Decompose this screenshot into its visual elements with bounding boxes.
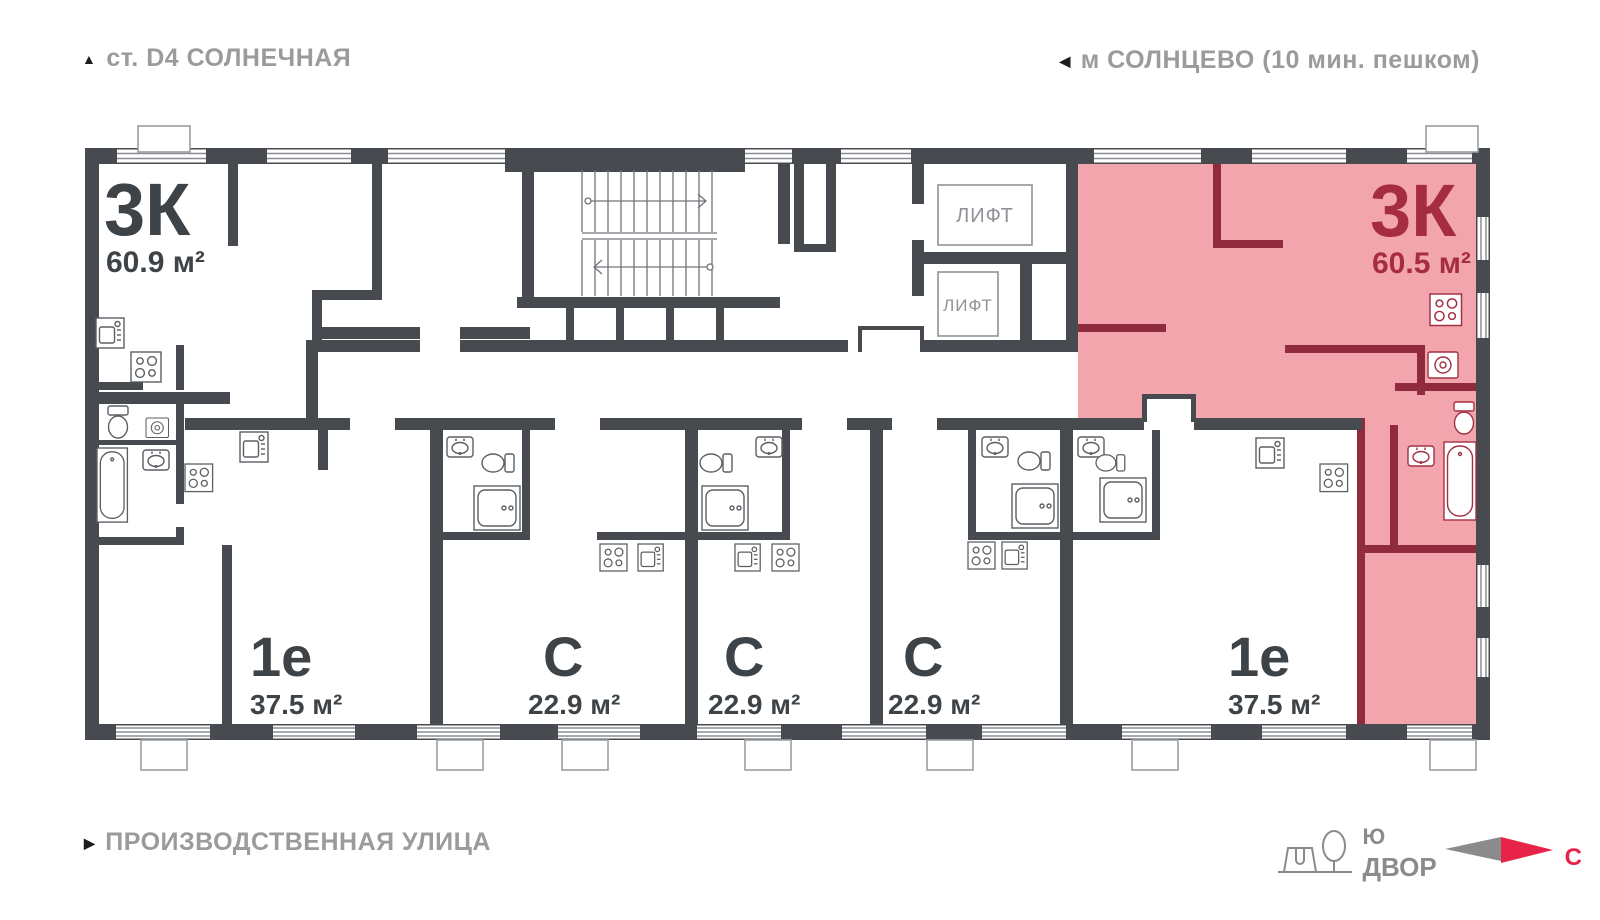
floorplan-page: ▲ ст. D4 СОЛНЕЧНАЯ ◀ м СОЛНЦЕВО (10 мин.…: [0, 0, 1600, 920]
bath-sink-icon: [1078, 437, 1104, 457]
kitchen-sink-icon: [240, 432, 268, 462]
stove-icon: [1430, 294, 1462, 326]
shower-icon: [702, 486, 748, 530]
apartment-type: 1е: [250, 625, 312, 688]
bathtub-icon: [97, 448, 127, 522]
kitchen-sink-icon: [96, 318, 124, 348]
toilet-icon: [1096, 455, 1125, 471]
bath-sink-icon: [143, 450, 169, 470]
kitchen-sink-icon: [1256, 438, 1284, 468]
shower-icon: [1012, 484, 1058, 528]
apartment-1e-right-label[interactable]: 1е 37.5 м²: [1228, 625, 1320, 720]
toilet-icon: [700, 454, 732, 472]
kitchen-sink-icon: [735, 544, 760, 571]
shower-icon: [1100, 478, 1146, 522]
toilet-icon: [482, 454, 514, 472]
stove-icon: [1320, 464, 1348, 492]
shower-icon: [474, 486, 520, 530]
entry-niche: [1147, 399, 1191, 430]
kitchen-sink-icon: [1002, 542, 1027, 569]
stove-icon: [600, 544, 627, 571]
apartment-area: 60.9 м²: [106, 246, 205, 279]
apartment-area: 37.5 м²: [250, 689, 342, 720]
studio-1-label[interactable]: С 22.9 м²: [528, 625, 620, 720]
washer-icon: [146, 418, 169, 438]
apartment-3k-left-label[interactable]: 3К 60.9 м²: [104, 168, 205, 279]
stove-icon: [772, 544, 799, 571]
bath-sink-icon: [1408, 446, 1434, 466]
stove-icon: [131, 352, 161, 382]
apartment-area: 37.5 м²: [1228, 689, 1320, 720]
apartment-3k-right-label[interactable]: 3К 60.5 м²: [1370, 169, 1471, 280]
apartment-area: 60.5 м²: [1372, 247, 1471, 280]
elevator-2-label: ЛИФТ: [943, 296, 993, 315]
studio-3-label[interactable]: С 22.9 м²: [888, 625, 980, 720]
bath-sink-icon: [982, 437, 1008, 457]
stove-icon: [185, 464, 213, 492]
apartment-type: 1е: [1228, 625, 1290, 688]
washer-icon: [1428, 352, 1458, 378]
toilet-icon: [1454, 402, 1474, 434]
toilet-icon: [108, 406, 128, 438]
apartment-type: С: [903, 625, 943, 688]
studio-2-label[interactable]: С 22.9 м²: [708, 625, 800, 720]
apartment-area: 22.9 м²: [708, 689, 800, 720]
apartment-type: С: [724, 625, 764, 688]
elevator-1: ЛИФТ: [938, 185, 1032, 245]
toilet-icon: [1018, 452, 1050, 470]
elevator-2: ЛИФТ: [938, 272, 998, 336]
apartment-type: 3К: [1370, 169, 1457, 252]
bathtub-icon: [1444, 442, 1476, 520]
elevator-1-label: ЛИФТ: [956, 205, 1014, 227]
apartment-type: 3К: [104, 168, 191, 251]
kitchen-sink-icon: [638, 544, 663, 571]
floor-plan: ЛИФТ ЛИФТ: [0, 0, 1600, 920]
apartment-1e-left-label[interactable]: 1е 37.5 м²: [250, 625, 342, 720]
bath-sink-icon: [756, 437, 782, 457]
stove-icon: [968, 542, 995, 569]
apartment-area: 22.9 м²: [888, 689, 980, 720]
elevator-niche: [862, 330, 920, 352]
apartment-area: 22.9 м²: [528, 689, 620, 720]
staircase: [582, 170, 717, 296]
apartment-type: С: [543, 625, 583, 688]
bath-sink-icon: [447, 437, 473, 457]
